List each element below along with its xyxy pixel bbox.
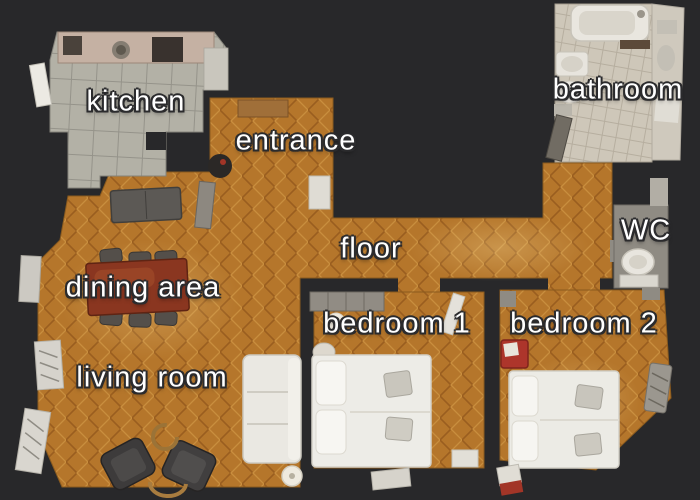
bed-2-pillow	[512, 421, 538, 461]
coffee-machine	[63, 36, 82, 55]
towel	[654, 99, 680, 123]
radiator-upper-left	[34, 340, 63, 390]
kitchen-sink-basin	[116, 45, 126, 55]
chair-fragment	[371, 468, 411, 490]
wall-cabinet	[657, 20, 677, 34]
bed-1-folded-clothes	[383, 370, 412, 397]
washbasin-bowl	[561, 56, 583, 72]
bathroom-shelf	[554, 104, 572, 116]
red-chair-cushion	[503, 342, 519, 357]
window-sill	[19, 256, 41, 303]
fridge	[204, 48, 228, 90]
floorplan-drawing	[0, 0, 700, 500]
bed-1-folded-clothes	[385, 417, 413, 441]
bed-1-pillow	[316, 410, 346, 454]
white-sofa-backrest	[288, 358, 300, 460]
toilet-tank	[620, 275, 658, 287]
bedside-table-1	[452, 450, 478, 467]
console-table	[238, 100, 288, 117]
stove	[152, 37, 183, 62]
bed-1-pillow	[316, 361, 346, 405]
wardrobe	[310, 292, 384, 311]
wall-fragment	[642, 288, 660, 300]
red-chair-fragment	[497, 464, 524, 495]
light-sheen-hallway	[410, 214, 590, 282]
wc-cistern-shelf	[650, 178, 668, 206]
toilet-bowl	[629, 255, 647, 269]
bed-2-pillow	[512, 376, 538, 416]
floor-lamp-stem	[289, 473, 295, 479]
scan-marker-dot	[220, 159, 226, 165]
dining-chair	[129, 313, 151, 328]
entrance-door	[309, 176, 330, 209]
dining-table-highlight	[94, 267, 155, 290]
radiator-left	[15, 408, 50, 473]
bathtub-tap	[637, 10, 645, 18]
floorplan-canvas: kitchen entrance bathroom WC floor dinin…	[0, 0, 700, 500]
bedroom-1-lamp	[327, 313, 345, 331]
wall-fragment	[500, 291, 516, 307]
bed-2-folded-clothes	[575, 384, 604, 409]
wall-basin	[657, 45, 675, 71]
kitchen-door	[29, 63, 51, 107]
bidet	[556, 81, 584, 103]
scan-marker	[208, 154, 232, 178]
bath-mat	[620, 40, 650, 49]
kitchen-wall-stub	[146, 132, 166, 150]
bed-2-folded-clothes	[574, 433, 602, 457]
bathtub-basin	[579, 11, 635, 35]
